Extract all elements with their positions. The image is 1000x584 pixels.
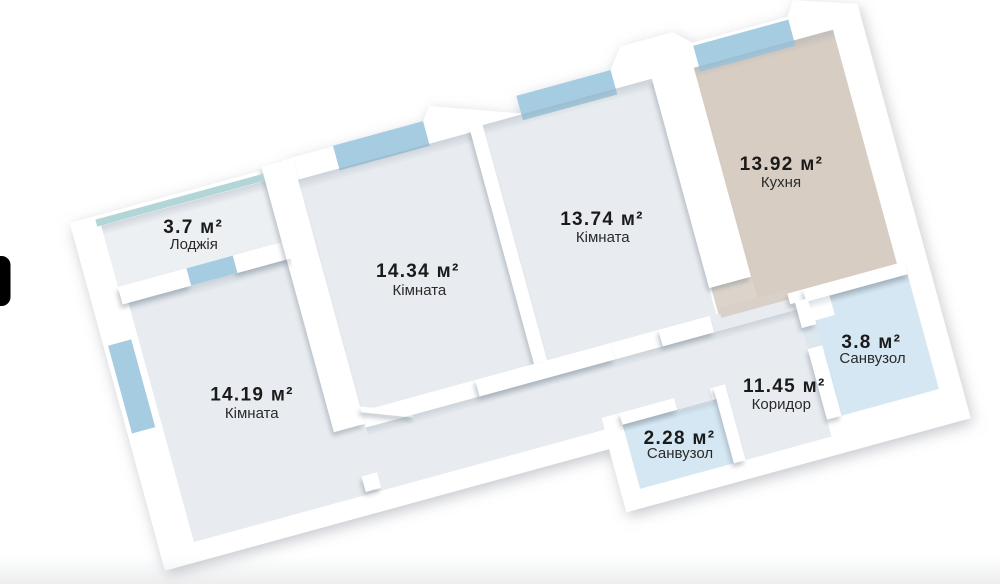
svg-text:14.34 м²: 14.34 м²	[376, 261, 460, 282]
svg-text:Кімната: Кімната	[225, 405, 279, 422]
svg-text:Санвузол: Санвузол	[839, 350, 905, 367]
svg-text:Коридор: Коридор	[752, 396, 811, 413]
svg-text:14.19 м²: 14.19 м²	[210, 385, 294, 406]
svg-text:3.7 м²: 3.7 м²	[163, 217, 223, 238]
svg-text:11.45 м²: 11.45 м²	[743, 376, 826, 397]
svg-text:Кімната: Кімната	[393, 282, 447, 299]
svg-text:Кухня: Кухня	[761, 174, 801, 191]
svg-text:13.74 м²: 13.74 м²	[560, 209, 644, 230]
svg-text:13.92 м²: 13.92 м²	[740, 154, 824, 175]
svg-text:Лоджія: Лоджія	[170, 236, 218, 253]
svg-text:Санвузол: Санвузол	[647, 445, 713, 462]
svg-text:Кімната: Кімната	[576, 229, 630, 246]
